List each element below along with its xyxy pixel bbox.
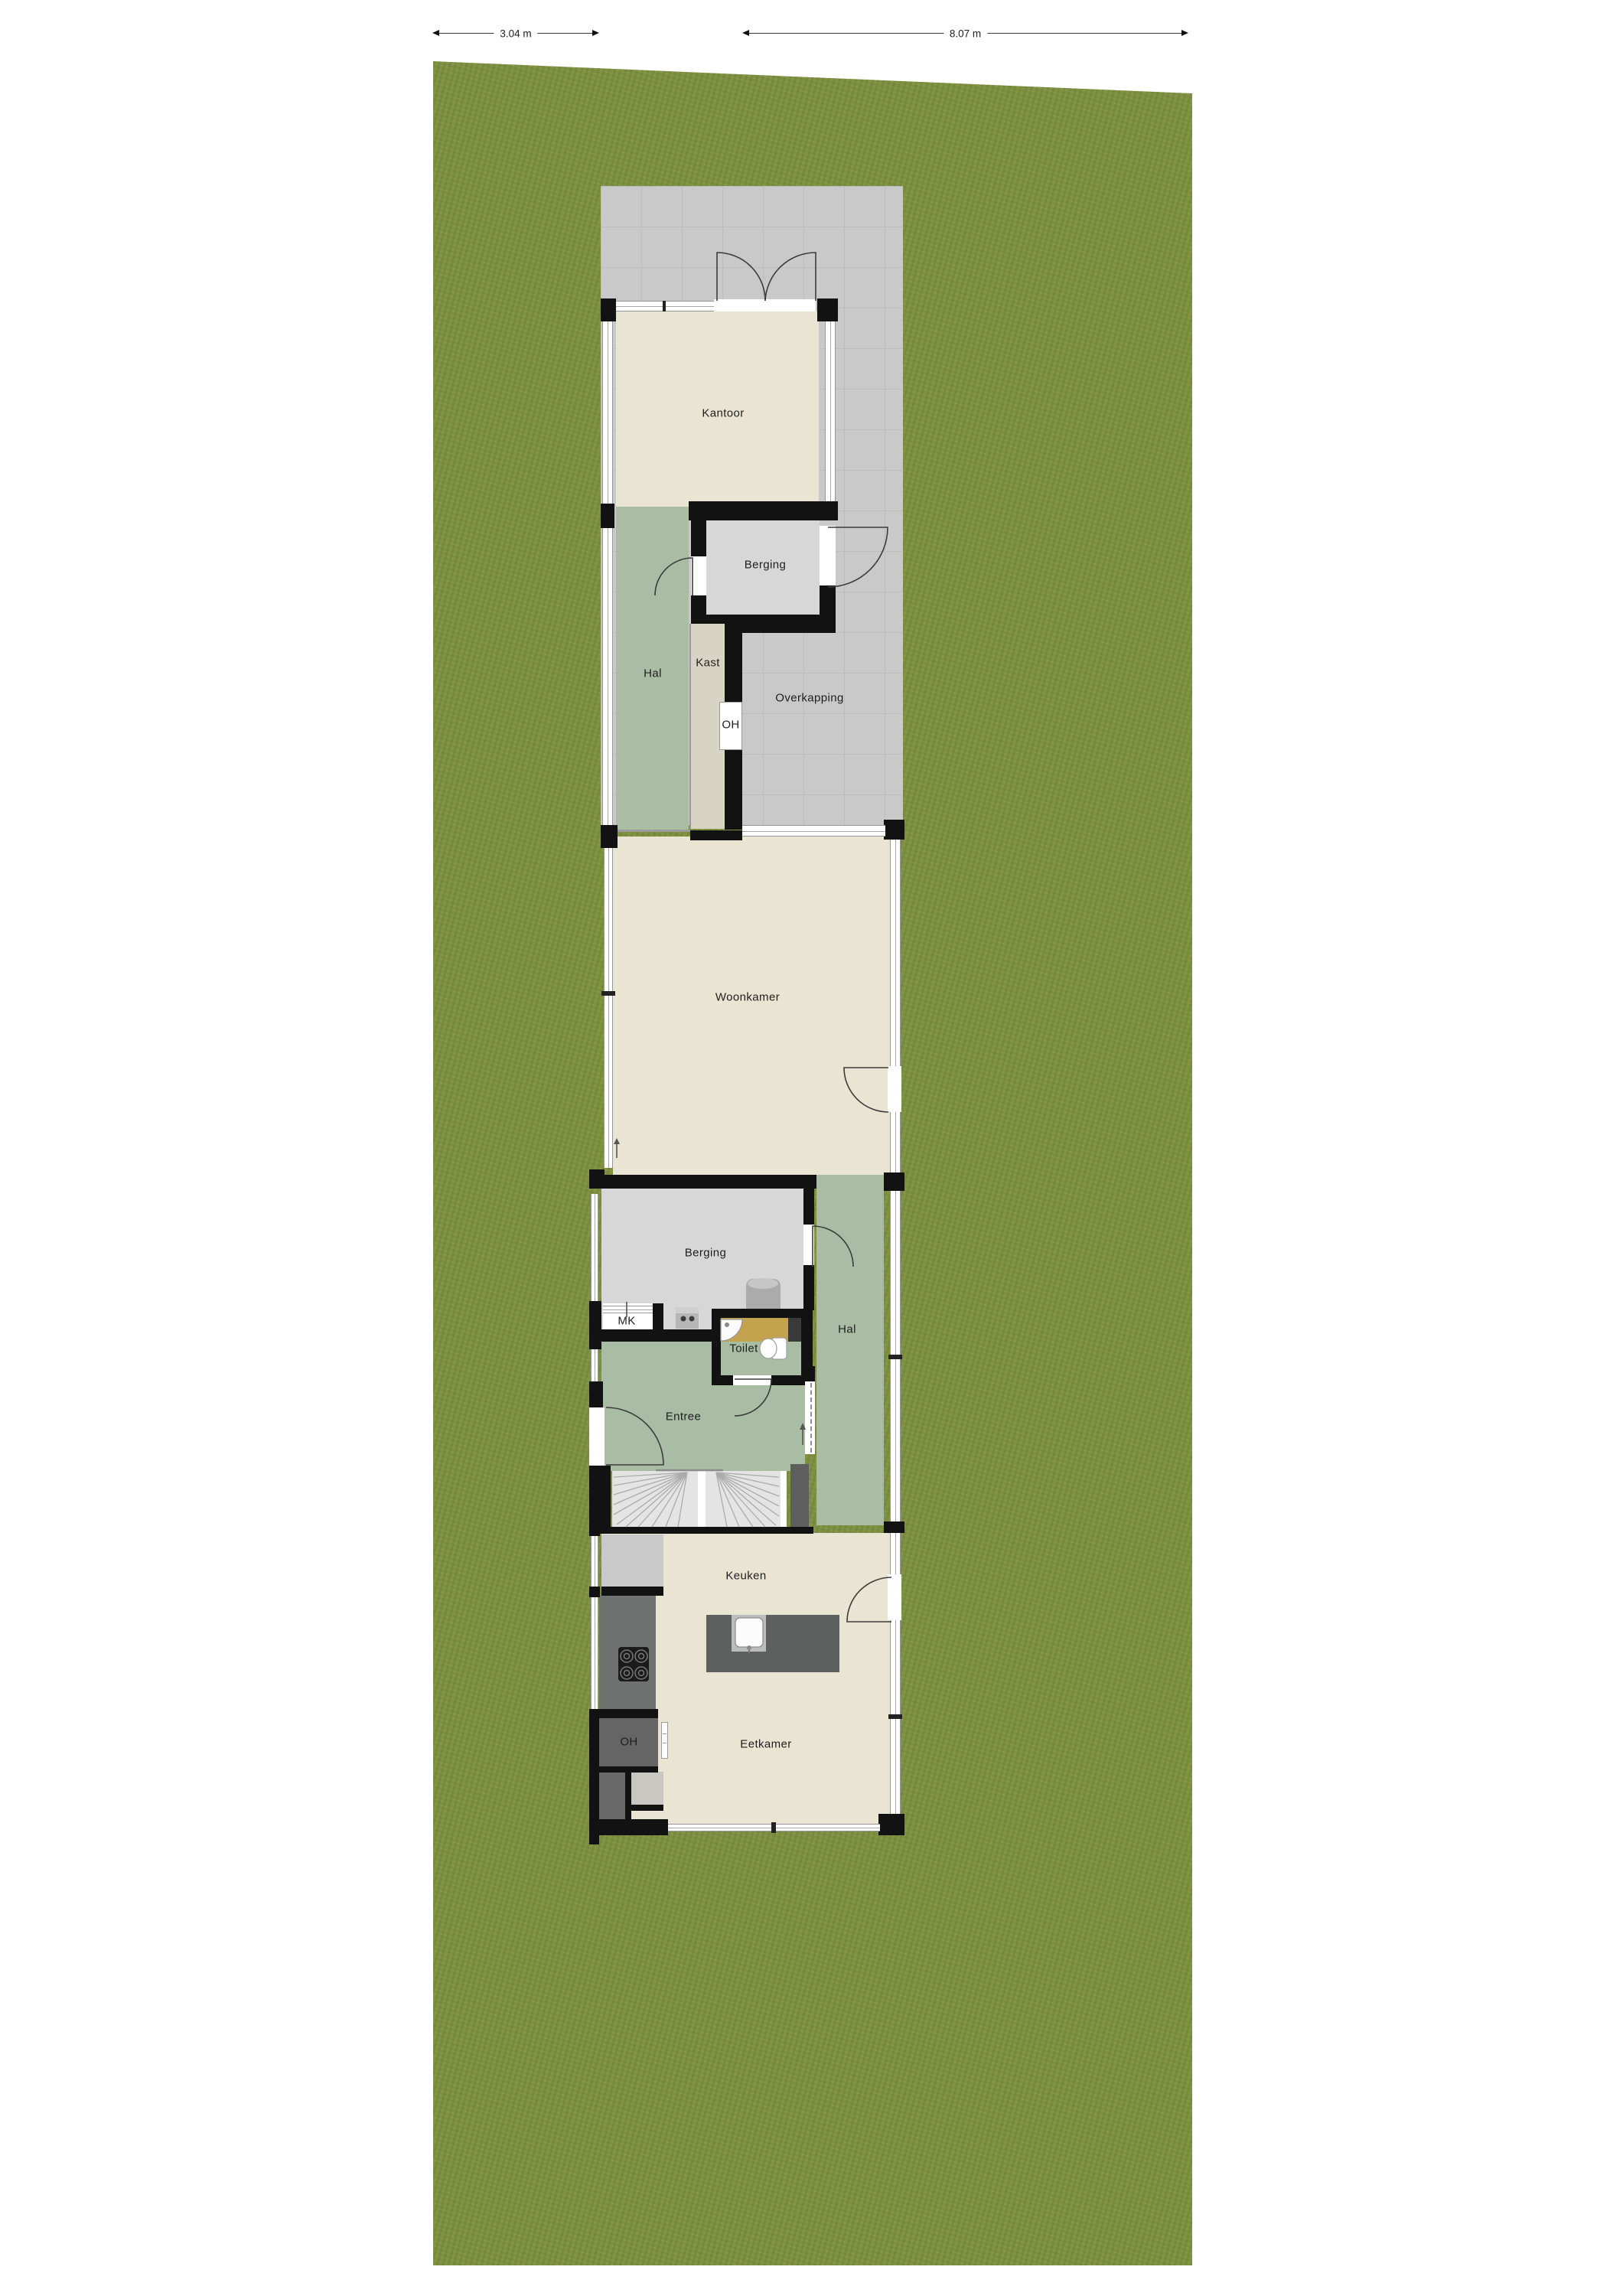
window	[742, 825, 885, 837]
wall-segment	[803, 1189, 814, 1225]
wall-segment	[625, 1770, 631, 1819]
dimension-line-left: 3.04 m	[432, 29, 599, 38]
wall-segment	[599, 1527, 813, 1534]
window	[591, 1536, 598, 1587]
hall-cupboard-block	[790, 1464, 809, 1527]
window-mullion	[888, 1714, 902, 1719]
room-label-mk: MK	[618, 1315, 635, 1328]
wall-segment	[725, 624, 742, 702]
room-floor-entree	[601, 1342, 805, 1471]
room-floor-woonkamer	[613, 837, 890, 1175]
wall-segment	[625, 1805, 663, 1811]
wall-segment	[589, 1466, 611, 1528]
window	[591, 1349, 598, 1381]
window	[591, 1194, 598, 1301]
window-mullion	[663, 301, 666, 311]
wall-segment	[589, 1301, 601, 1349]
room-floor-hal-beneden	[816, 1175, 884, 1525]
room-label-kantoor: Kantoor	[702, 407, 744, 420]
cooktop	[618, 1647, 649, 1681]
window	[602, 528, 613, 825]
glass-partition	[805, 1381, 815, 1454]
room-label-oh-boven: OH	[722, 719, 739, 732]
window	[604, 848, 613, 1168]
wall-segment	[817, 298, 838, 321]
floor-plan: 3.04 m 8.07 m	[0, 0, 1623, 2296]
room-label-eetkamer: Eetkamer	[740, 1738, 791, 1751]
washer-appliance-top	[676, 1307, 699, 1313]
wall-segment	[820, 585, 836, 616]
door-opening	[888, 1066, 901, 1112]
kitchen-island	[706, 1615, 839, 1672]
stair-gap	[698, 1471, 706, 1527]
wall-segment	[589, 1587, 600, 1597]
dimension-label: 3.04 m	[494, 28, 537, 40]
wall-segment	[601, 504, 614, 528]
door-opening	[714, 299, 816, 311]
arrow-right-icon	[592, 30, 599, 36]
wall-segment	[589, 1527, 600, 1536]
kast-divider-line	[689, 624, 691, 829]
arrow-right-icon	[1181, 30, 1188, 36]
room-label-entree: Entree	[666, 1411, 702, 1424]
wall-segment	[803, 1265, 814, 1310]
door-opening	[589, 1407, 605, 1466]
island-sink-panel	[732, 1615, 766, 1652]
room-label-oh-beneden: OH	[620, 1736, 637, 1749]
window	[825, 321, 836, 501]
wall-segment	[712, 1309, 813, 1318]
louver-door	[661, 1722, 668, 1759]
window	[591, 1597, 598, 1709]
wall-segment	[884, 1172, 904, 1191]
wall-segment	[712, 1375, 733, 1385]
room-label-toilet: Toilet	[729, 1342, 758, 1355]
room-label-kast: Kast	[696, 657, 720, 670]
utility-alcove	[631, 1772, 663, 1805]
wall-segment	[690, 830, 742, 840]
window-mullion	[601, 991, 615, 996]
window	[602, 321, 613, 504]
window	[890, 840, 901, 1066]
wall-segment	[589, 1709, 658, 1718]
wall-segment	[589, 1819, 668, 1835]
room-label-hal-beneden: Hal	[838, 1323, 856, 1336]
wall-segment	[589, 1381, 603, 1407]
wall-segment	[601, 298, 616, 321]
wall-segment	[601, 825, 618, 848]
door-opening	[733, 1375, 771, 1385]
wall-segment	[884, 820, 904, 840]
wall-segment	[803, 1366, 815, 1381]
room-label-berging-beneden: Berging	[685, 1247, 727, 1260]
wall-segment	[653, 1303, 663, 1342]
wall-segment	[878, 1814, 904, 1835]
wall-segment	[589, 1175, 816, 1189]
window-mullion	[771, 1822, 776, 1833]
wall-segment	[601, 1587, 663, 1596]
wall-segment	[691, 520, 706, 556]
dimension-line-right: 8.07 m	[742, 29, 1188, 38]
wall-segment	[689, 501, 819, 520]
wall-segment	[884, 1521, 904, 1533]
wall-segment	[691, 615, 725, 624]
door-opening	[820, 526, 836, 585]
dimension-label: 8.07 m	[943, 28, 987, 40]
window	[890, 1112, 901, 1172]
door-opening	[803, 1225, 814, 1265]
utility-block	[599, 1770, 625, 1819]
room-label-hal-boven: Hal	[644, 667, 662, 680]
room-label-overkapping: Overkapping	[775, 692, 843, 705]
door-opening	[888, 1574, 901, 1620]
window	[890, 1533, 901, 1574]
room-label-woonkamer: Woonkamer	[715, 991, 780, 1004]
mk-door	[603, 1306, 653, 1313]
kitchen-cabinet-block	[601, 1534, 663, 1587]
arrow-left-icon	[742, 30, 749, 36]
room-label-berging-boven: Berging	[745, 559, 787, 572]
door-opening	[691, 556, 706, 595]
wall-segment	[725, 750, 742, 830]
wall-segment	[819, 501, 838, 520]
arrow-left-icon	[432, 30, 439, 36]
room-label-keuken: Keuken	[725, 1570, 766, 1583]
floor-transition-line	[618, 830, 690, 832]
stair-gap	[781, 1471, 787, 1527]
window-mullion	[888, 1355, 902, 1359]
